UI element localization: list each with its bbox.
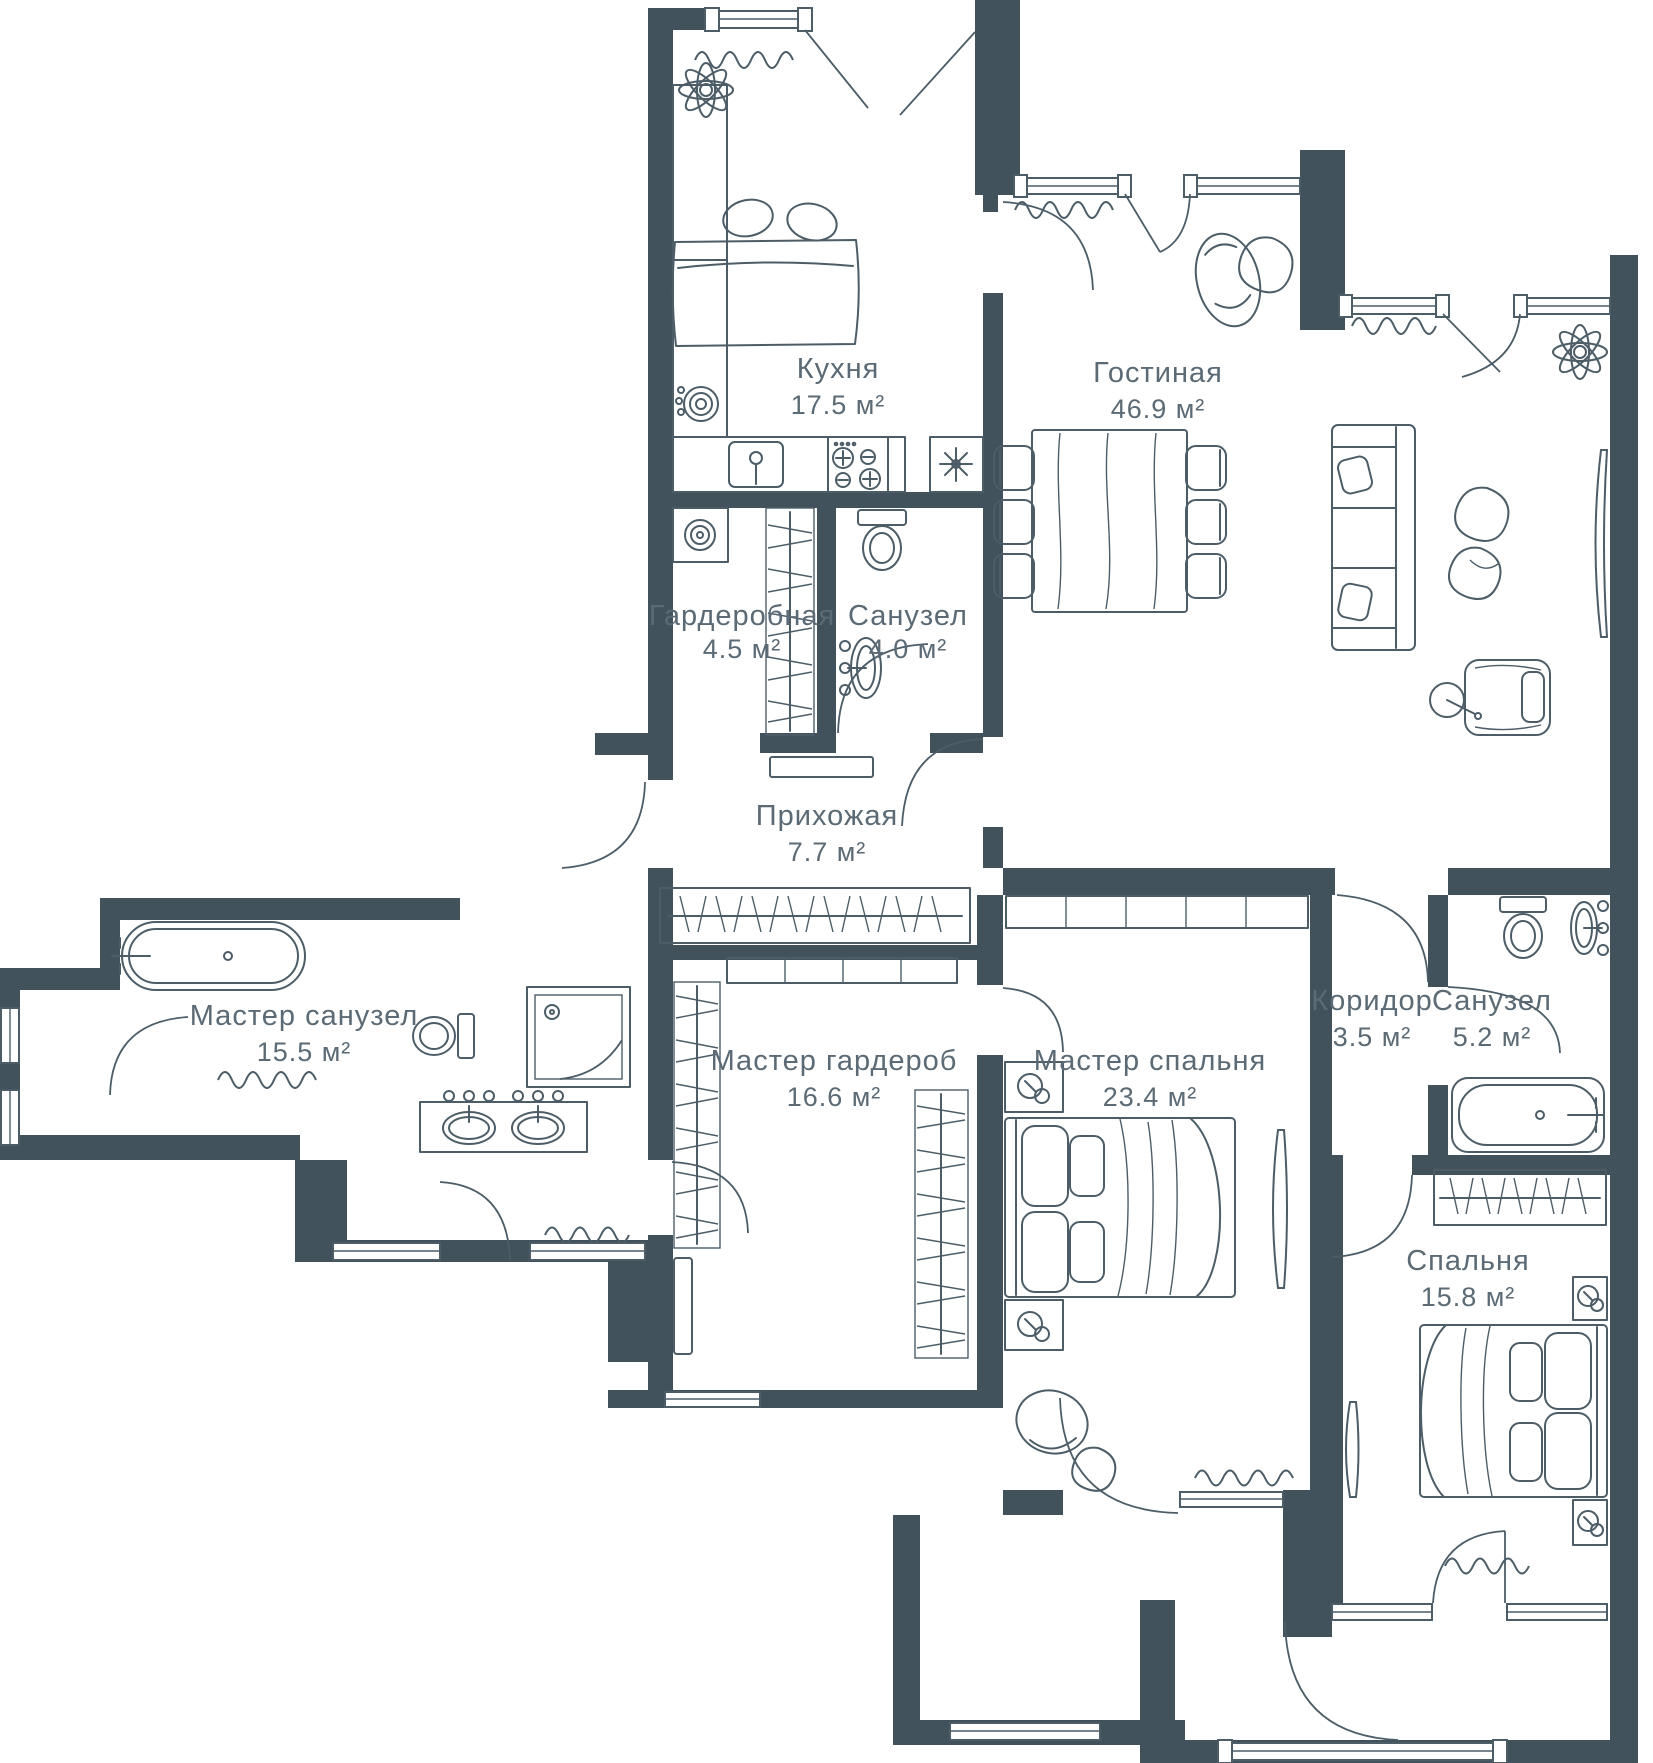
window — [1218, 1740, 1507, 1763]
dining-chair — [994, 446, 1034, 490]
dining-chair — [1186, 446, 1226, 490]
window — [530, 1243, 645, 1260]
dining-table — [994, 430, 1226, 612]
door-master-bath — [110, 1017, 188, 1095]
kitchen-furniture — [673, 52, 983, 492]
room-area-master-bedroom: 23.4 м² — [1103, 1082, 1198, 1112]
lamp-icon — [1018, 1074, 1049, 1103]
closet-hanger-row — [660, 888, 970, 943]
window — [705, 8, 812, 31]
washer-icon — [673, 508, 728, 562]
window — [950, 1723, 1100, 1740]
windows — [1, 8, 1610, 1763]
lamp-icon — [1018, 1312, 1049, 1341]
room-label-bath-small: Санузел — [848, 600, 968, 632]
room-label-kitchen: Кухня — [797, 353, 880, 385]
radiator-icon — [1015, 202, 1113, 218]
window — [333, 1243, 440, 1260]
sink-icon — [729, 442, 783, 487]
wall — [0, 968, 120, 990]
radiator-icon — [1445, 1559, 1529, 1574]
lamp-icon — [1578, 1511, 1603, 1536]
master-wardrobe-furniture — [674, 958, 968, 1358]
room-label-master-bath: Мастер санузел — [190, 1000, 419, 1032]
radiator-icon — [1195, 1471, 1293, 1486]
dining-chair — [994, 554, 1034, 598]
pouf-chairs — [1449, 488, 1508, 599]
wall — [977, 1055, 1003, 1392]
room-area-bedroom: 15.8 м² — [1421, 1282, 1516, 1312]
balcony-door-loggia — [1285, 1622, 1398, 1740]
wall — [648, 8, 673, 780]
wall — [1428, 895, 1448, 987]
wall-right — [1610, 255, 1638, 1763]
bed — [1005, 1118, 1235, 1297]
kitchen-table — [673, 195, 859, 346]
wall — [608, 1252, 672, 1362]
shower-icon — [527, 987, 630, 1087]
appliance-snowflake-icon — [930, 437, 983, 492]
plates-icon — [676, 387, 718, 421]
radiator-icon — [1352, 318, 1436, 334]
tv-console — [674, 1258, 692, 1354]
door-hallway-corridor — [562, 782, 645, 868]
wall — [0, 1135, 300, 1160]
shelf-row — [727, 958, 957, 983]
wall — [977, 895, 1003, 985]
floor-plan-canvas: Кухня 17.5 м² Гостиная 46.9 м² Гардеробн… — [0, 0, 1653, 1763]
armchair — [1187, 227, 1270, 333]
tv-icon — [1346, 1402, 1359, 1497]
room-area-kitchen: 17.5 м² — [791, 390, 886, 420]
room-area-corridor: 3.5 м² — [1333, 1022, 1412, 1052]
nightstand — [1573, 1500, 1607, 1545]
room-area-hallway: 7.7 м² — [788, 837, 867, 867]
balcony-door-living-right — [1443, 314, 1520, 377]
window — [1, 1008, 19, 1063]
tv-icon — [1596, 450, 1608, 637]
master-bath-fixtures — [112, 922, 630, 1243]
room-area-master-bath: 15.5 м² — [257, 1037, 352, 1067]
window — [665, 1392, 760, 1407]
wall — [1140, 1600, 1175, 1763]
room-label-master-bedroom: Мастер спальня — [1034, 1045, 1266, 1077]
room-label-bedroom: Спальня — [1406, 1245, 1530, 1277]
wall — [1003, 1490, 1063, 1515]
room-label-hallway: Прихожая — [756, 800, 898, 832]
wall — [100, 898, 460, 920]
room-area-bath-52: 5.2 м² — [1453, 1022, 1532, 1052]
room-area-living: 46.9 м² — [1111, 394, 1206, 424]
wall — [983, 827, 1003, 868]
wall — [760, 733, 836, 753]
wall-pillar — [975, 0, 1020, 195]
wall — [983, 195, 998, 212]
wall — [295, 1160, 347, 1242]
wall — [648, 492, 983, 508]
window — [1014, 175, 1131, 197]
window — [1339, 295, 1449, 317]
chaise-lounge — [1465, 660, 1550, 735]
armchair — [1008, 1381, 1115, 1490]
dining-chair — [1186, 554, 1226, 598]
balcony-door-bedroom — [1433, 1531, 1505, 1603]
toilet-icon — [413, 1014, 474, 1058]
wall — [1412, 1155, 1610, 1175]
sofa — [1332, 425, 1415, 650]
door-corridor — [1337, 895, 1428, 982]
tv-icon — [1273, 1130, 1287, 1288]
dining-chair — [1186, 500, 1226, 544]
room-area-bath-small: 4.0 м² — [869, 634, 948, 664]
room-label-corridor: Коридор — [1311, 985, 1433, 1017]
window — [1507, 1604, 1607, 1620]
window — [1, 1090, 19, 1145]
stove-icon — [828, 437, 888, 492]
door-kitchen-living — [1003, 202, 1093, 290]
window — [1184, 175, 1300, 197]
hanger-rail — [915, 1090, 968, 1358]
balcony-door-kitchen — [805, 30, 975, 115]
wall-pillar — [1283, 1490, 1332, 1637]
sink-icon — [1571, 901, 1608, 955]
radiator-icon — [218, 1072, 316, 1088]
room-label-master-wardrobe: Мастер гардероб — [711, 1045, 958, 1077]
room-area-master-wardrobe: 16.6 м² — [787, 1082, 882, 1112]
wall — [648, 8, 712, 30]
closet-row — [1006, 896, 1308, 928]
plant-icon — [679, 63, 733, 117]
room-area-wardrobe: 4.5 м² — [703, 634, 782, 664]
bedroom-furniture — [1346, 1170, 1607, 1574]
wall — [1448, 868, 1610, 895]
double-sink-vanity — [420, 1091, 587, 1152]
wall — [1428, 1085, 1448, 1155]
toilet-icon — [1500, 897, 1546, 958]
dining-chair — [994, 500, 1034, 544]
kitchen-cabinet — [673, 85, 727, 437]
room-label-living: Гостиная — [1093, 357, 1223, 389]
wall — [1003, 868, 1335, 895]
master-bedroom-furniture — [1005, 896, 1308, 1491]
lamp-icon — [1578, 1286, 1603, 1311]
hanger-rail — [674, 982, 720, 1248]
nightstand — [1005, 1300, 1063, 1350]
closet-hanger-row — [1434, 1170, 1606, 1225]
window — [1332, 1604, 1432, 1620]
floor-lamp-icon — [1430, 683, 1481, 719]
balcony-door-living-left — [1125, 194, 1190, 252]
door-master-bedroom — [1003, 988, 1063, 1052]
wall — [893, 1515, 920, 1745]
door-bedroom — [1332, 1175, 1412, 1257]
kitchen-counter — [673, 437, 983, 492]
room-label-wardrobe: Гардеробная — [649, 600, 835, 632]
bathtub-icon — [1452, 1078, 1604, 1152]
toilet-icon — [858, 510, 906, 570]
plant-icon — [1553, 325, 1607, 379]
floor-plan-svg: Кухня 17.5 м² Гостиная 46.9 м² Гардеробн… — [0, 0, 1653, 1763]
wall — [595, 733, 672, 755]
window — [1514, 295, 1610, 317]
room-label-bath-52: Санузел — [1432, 985, 1552, 1017]
window — [1180, 1492, 1283, 1507]
bed — [1420, 1325, 1607, 1497]
side-table — [1239, 237, 1292, 292]
bathtub-icon — [112, 922, 305, 990]
console-table — [770, 757, 873, 777]
nightstand — [1573, 1277, 1607, 1320]
